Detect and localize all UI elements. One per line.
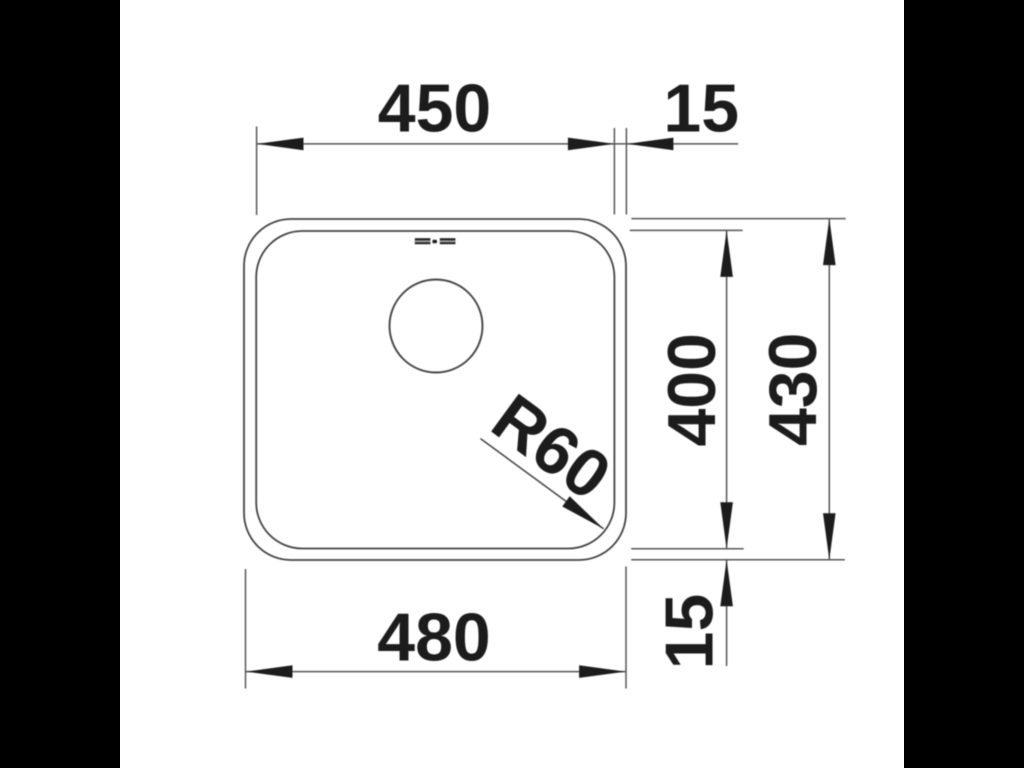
svg-text:15: 15 xyxy=(652,594,728,670)
svg-text:480: 480 xyxy=(377,600,490,676)
svg-text:430: 430 xyxy=(755,333,831,446)
svg-text:400: 400 xyxy=(654,333,730,446)
svg-text:450: 450 xyxy=(378,71,491,147)
svg-text:15: 15 xyxy=(663,71,739,147)
